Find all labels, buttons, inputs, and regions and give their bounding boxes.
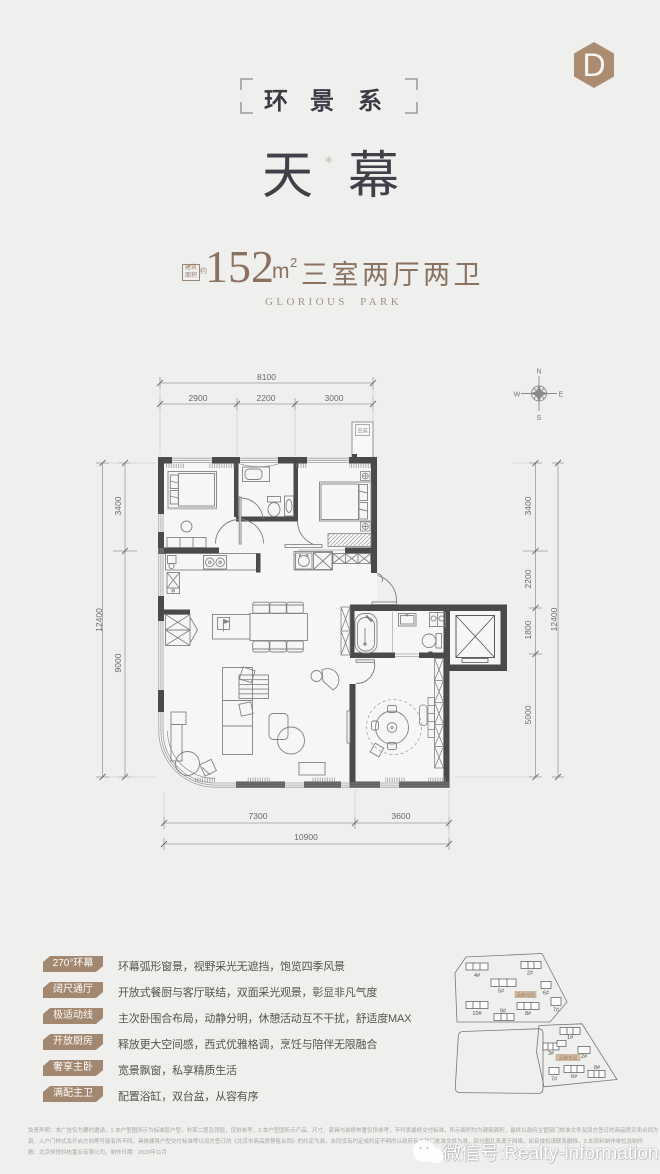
svg-text:7300: 7300: [249, 811, 268, 821]
svg-text:N: N: [536, 369, 541, 376]
svg-text:6#: 6#: [571, 1074, 578, 1080]
svg-text:W: W: [514, 392, 521, 399]
svg-text:空调: 空调: [357, 428, 367, 435]
svg-text:7#: 7#: [551, 1077, 558, 1083]
svg-text:丽都花园: 丽都花园: [517, 992, 535, 999]
svg-text:3400: 3400: [523, 496, 533, 515]
svg-text:2200: 2200: [523, 569, 533, 588]
svg-text:6#: 6#: [543, 991, 550, 997]
svg-text:4#: 4#: [474, 973, 481, 979]
svg-text:12400: 12400: [549, 607, 559, 631]
svg-text:3400: 3400: [113, 496, 123, 515]
svg-text:7#: 7#: [553, 1008, 560, 1014]
svg-text:2#: 2#: [527, 971, 534, 977]
svg-text:丽都花园: 丽都花园: [559, 1055, 577, 1062]
svg-text:1#: 1#: [567, 1035, 574, 1041]
svg-text:2900: 2900: [189, 393, 208, 403]
svg-text:3600: 3600: [392, 811, 411, 821]
svg-text:5000: 5000: [523, 705, 533, 724]
svg-text:2#: 2#: [581, 1054, 588, 1060]
svg-text:8100: 8100: [257, 372, 276, 382]
svg-text:12400: 12400: [94, 608, 104, 632]
svg-text:8#: 8#: [594, 1065, 601, 1071]
svg-text:10#: 10#: [472, 1011, 482, 1017]
svg-text:5#: 5#: [498, 989, 505, 995]
svg-text:9#: 9#: [500, 1009, 507, 1015]
svg-text:8#: 8#: [525, 1011, 532, 1017]
svg-text:10900: 10900: [294, 832, 318, 842]
svg-text:S: S: [537, 415, 542, 422]
svg-text:9000: 9000: [113, 653, 123, 672]
svg-text:2200: 2200: [257, 393, 276, 403]
svg-text:3#: 3#: [548, 1051, 555, 1057]
svg-text:3000: 3000: [325, 393, 344, 403]
svg-text:1800: 1800: [523, 620, 533, 639]
svg-text:E: E: [559, 392, 564, 399]
